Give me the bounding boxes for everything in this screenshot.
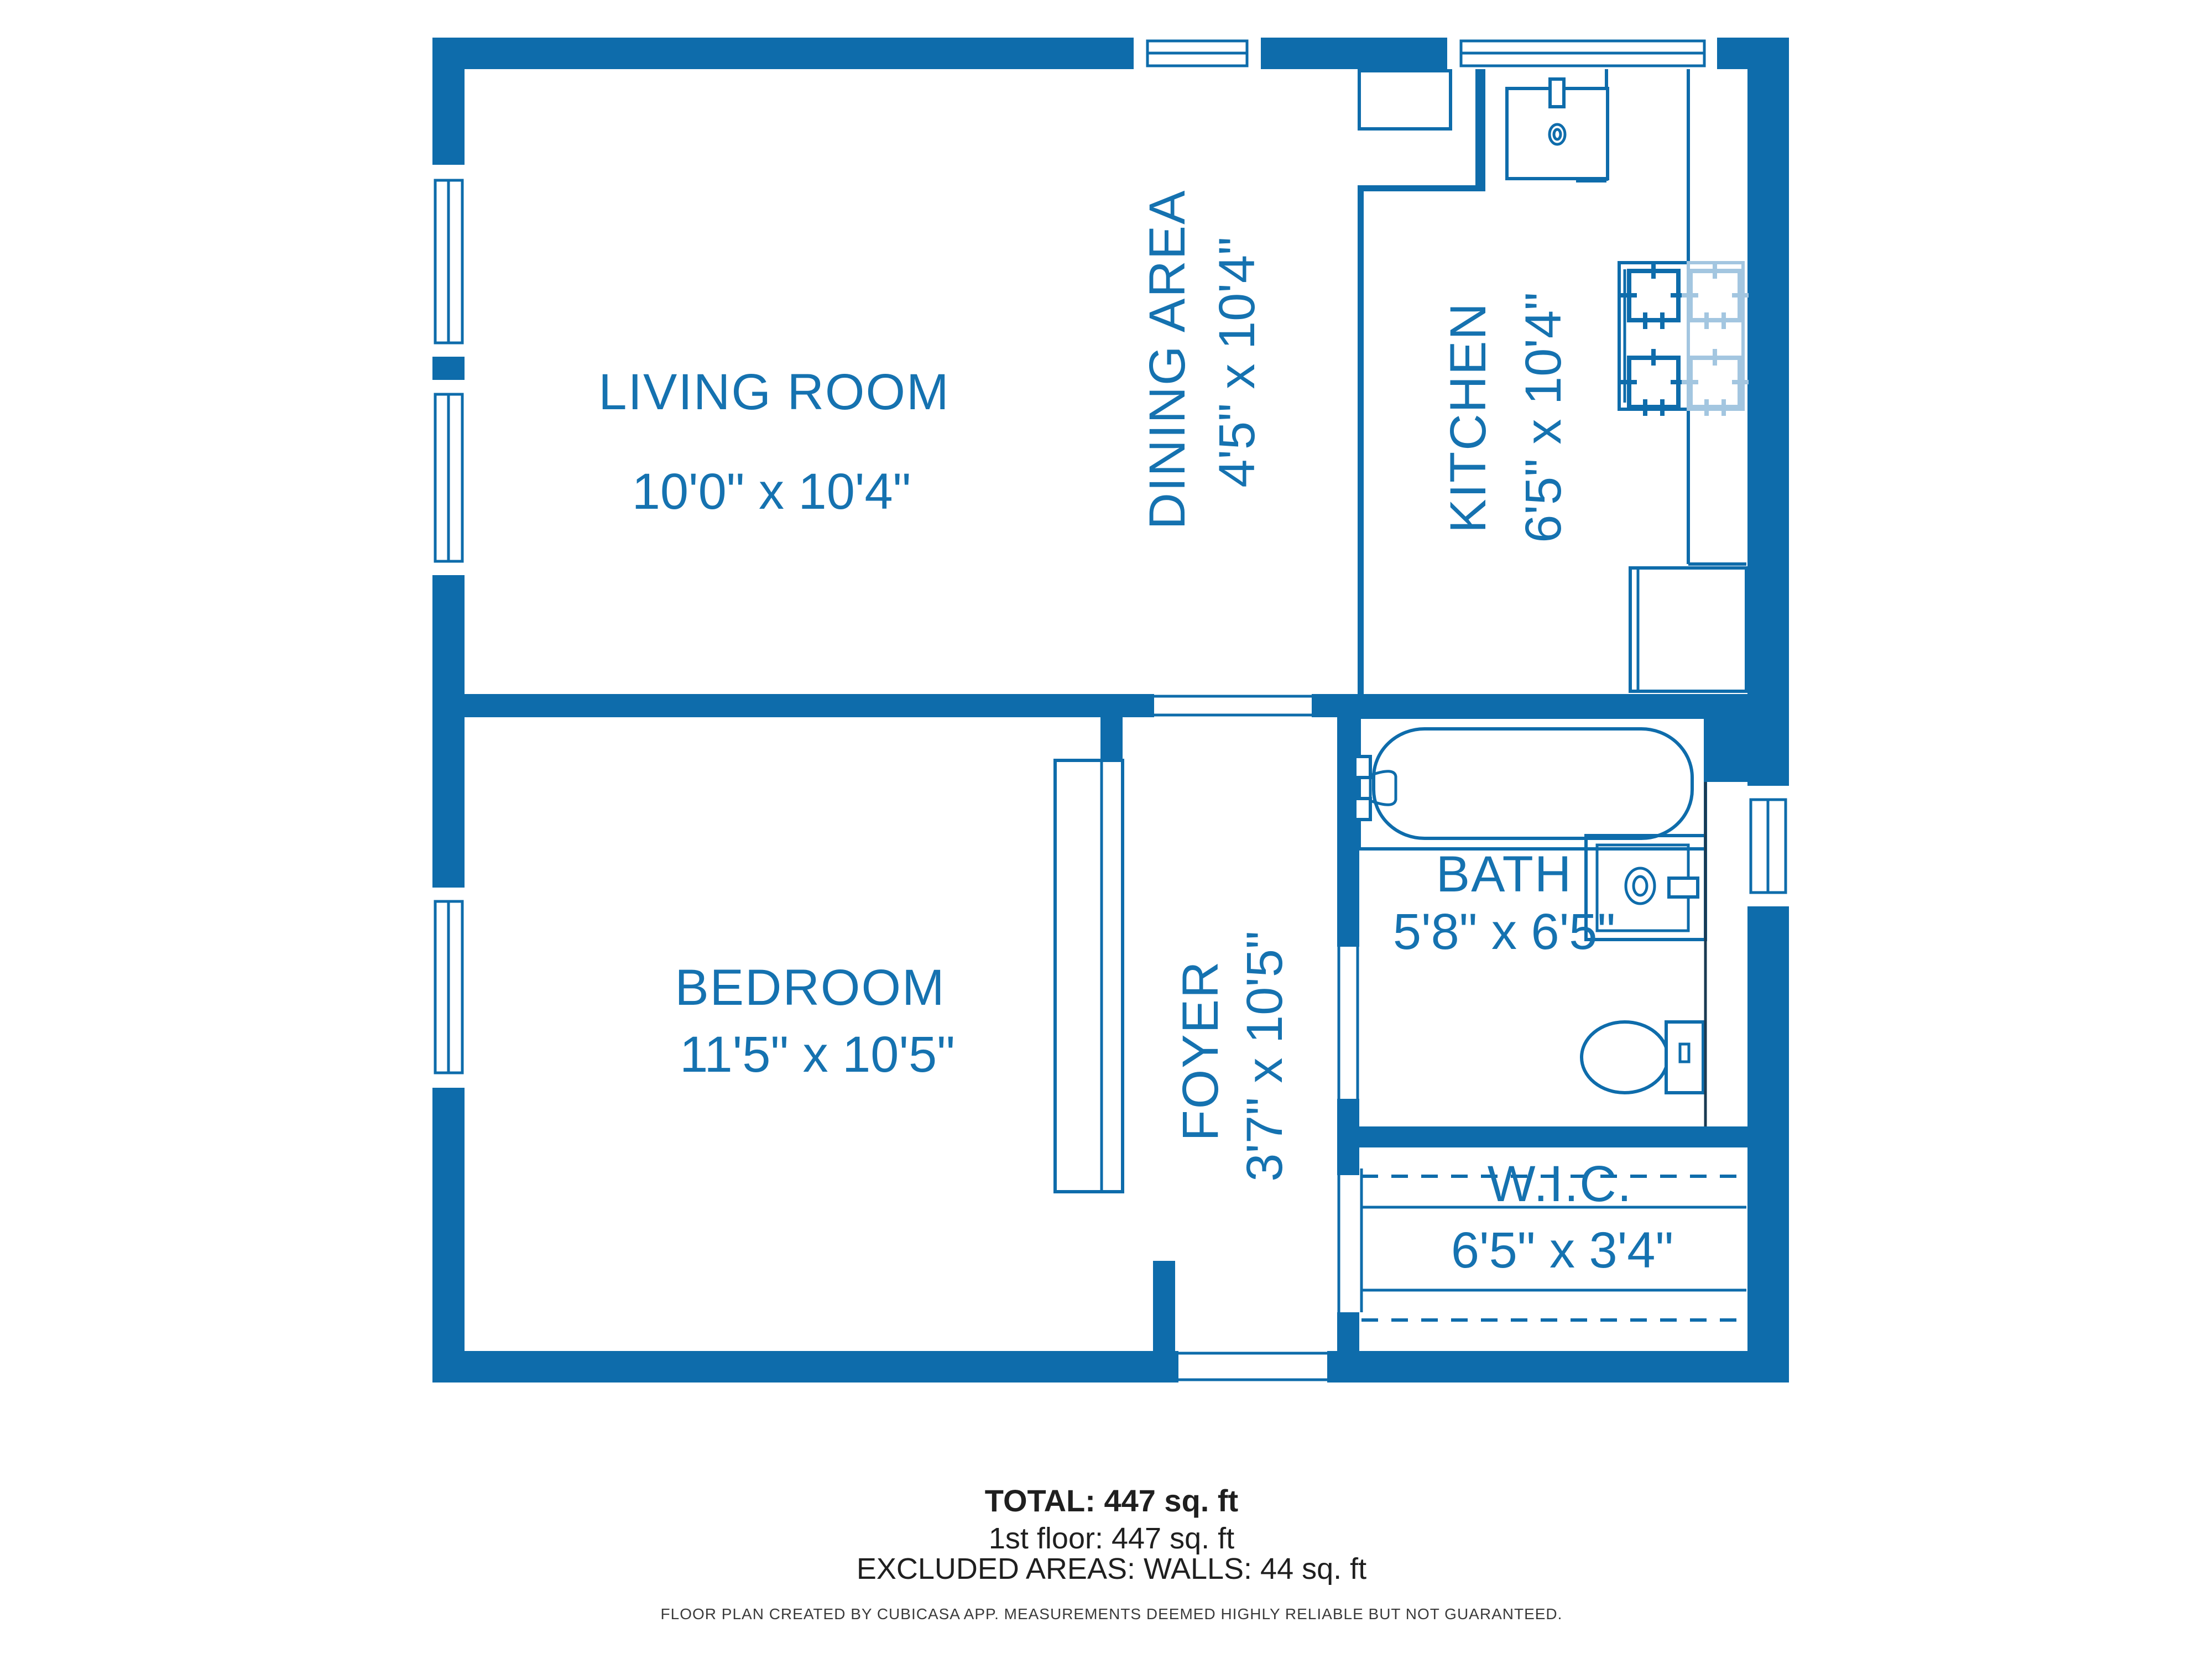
window-living-1 (432, 165, 465, 357)
bedroom-closet (1055, 760, 1123, 1192)
label-wic: W.I.C. (1488, 1156, 1632, 1212)
window-bath (1747, 786, 1789, 906)
label-bath: BATH (1436, 846, 1573, 902)
room-labels: LIVING ROOM 10'0" x 10'4" DINING AREA 4'… (598, 189, 1673, 1279)
wall-bottom (432, 1351, 1789, 1383)
wall-foyer-west-upper (1100, 694, 1123, 760)
floor-plan-page: LIVING ROOM 10'0" x 10'4" DINING AREA 4'… (0, 0, 2212, 1659)
kitchen-sink (1507, 79, 1608, 179)
window-living-2 (432, 380, 465, 575)
label-dining-area: DINING AREA (1139, 189, 1196, 529)
wall-kitchen-divider (1358, 191, 1364, 694)
window-dining (1134, 38, 1261, 69)
wall-kitchen-divider-upper (1475, 69, 1485, 191)
window-bedroom (432, 888, 465, 1088)
toilet (1582, 1022, 1703, 1093)
bathtub (1355, 717, 1705, 849)
burner-icon (1620, 262, 1749, 416)
label-bedroom: BEDROOM (675, 959, 945, 1016)
label-foyer: FOYER (1172, 961, 1229, 1141)
summary-block: TOTAL: 447 sq. ft 1st floor: 447 sq. ft … (661, 1483, 1563, 1623)
dims-kitchen: 6'5" x 10'4" (1515, 292, 1572, 542)
stove (1619, 262, 1749, 416)
excluded-area-text: EXCLUDED AREAS: WALLS: 44 sq. ft (857, 1552, 1366, 1585)
dims-foyer: 3'7" x 10'5" (1237, 931, 1293, 1181)
label-living-room: LIVING ROOM (598, 364, 950, 420)
wall-right (1747, 38, 1789, 1383)
dims-living-room: 10'0" x 10'4" (632, 463, 911, 520)
dims-wic: 6'5" x 3'4" (1451, 1222, 1673, 1279)
opening-entry-door (1178, 1351, 1327, 1383)
faucet-icon (1550, 79, 1564, 107)
dims-dining-area: 4'5" x 10'4" (1209, 237, 1265, 487)
wall-foyer-east-3 (1337, 1312, 1359, 1351)
window-kitchen (1447, 38, 1717, 69)
total-area-text: TOTAL: 447 sq. ft (985, 1483, 1238, 1518)
wall-foyer-west-lower (1153, 1261, 1175, 1351)
floor-area-text: 1st floor: 447 sq. ft (989, 1522, 1234, 1555)
cabinet (1359, 71, 1451, 129)
wall-bath-wic (1337, 1126, 1747, 1147)
dims-bedroom: 11'5" x 10'5" (680, 1026, 955, 1083)
label-kitchen: KITCHEN (1440, 302, 1496, 533)
disclaimer-text: FLOOR PLAN CREATED BY CUBICASA APP. MEAS… (661, 1605, 1563, 1623)
dims-bath: 5'8" x 6'5" (1393, 904, 1615, 960)
refrigerator (1630, 568, 1746, 691)
floor-plan-canvas: LIVING ROOM 10'0" x 10'4" DINING AREA 4'… (0, 0, 2212, 1659)
wall-kitchen-divider-band (1358, 185, 1477, 191)
